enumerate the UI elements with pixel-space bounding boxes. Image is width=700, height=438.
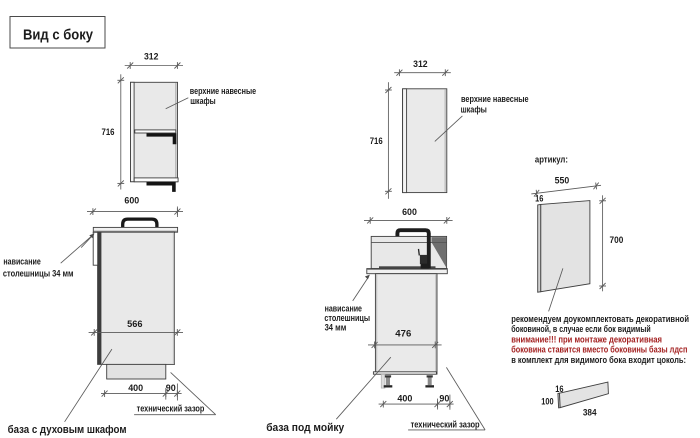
svg-text:90: 90 — [439, 393, 449, 403]
svg-text:технический зазор: технический зазор — [137, 404, 205, 414]
svg-text:716: 716 — [370, 136, 383, 146]
svg-text:34 мм: 34 мм — [325, 323, 347, 333]
svg-text:верхние навесные: верхние навесные — [190, 86, 256, 96]
svg-text:600: 600 — [402, 207, 417, 217]
svg-text:Вид с боку: Вид с боку — [23, 28, 93, 44]
svg-text:боковиной, в случае если бок в: боковиной, в случае если бок видимый — [511, 324, 651, 334]
svg-text:600: 600 — [124, 195, 139, 205]
svg-text:столешницы 34 мм: столешницы 34 мм — [3, 268, 74, 278]
svg-text:90: 90 — [166, 383, 176, 393]
svg-text:шкафы: шкафы — [461, 105, 487, 115]
svg-text:716: 716 — [102, 127, 115, 137]
svg-text:566: 566 — [127, 319, 142, 330]
svg-text:база с духовым шкафом: база с духовым шкафом — [8, 424, 127, 436]
svg-text:100: 100 — [541, 396, 553, 406]
svg-text:700: 700 — [610, 235, 624, 245]
svg-text:боковина ставится вместо боков: боковина ставится вместо боковины базы л… — [511, 345, 687, 355]
svg-text:нависание: нависание — [3, 257, 40, 267]
svg-text:рекомендуем доукомплектовать д: рекомендуем доукомплектовать декоративно… — [511, 314, 689, 324]
svg-text:400: 400 — [128, 383, 143, 393]
svg-text:в комплект для видимого бока в: в комплект для видимого бока входит цоко… — [511, 355, 686, 365]
svg-text:шкафы: шкафы — [190, 96, 216, 106]
svg-text:столешницы: столешницы — [324, 313, 370, 323]
svg-text:артикул:: артикул: — [535, 154, 568, 164]
svg-text:312: 312 — [144, 52, 159, 62]
svg-text:база под мойку: база под мойку — [266, 422, 345, 434]
svg-text:312: 312 — [413, 59, 428, 69]
svg-text:верхние навесные: верхние навесные — [461, 94, 529, 104]
svg-text:400: 400 — [397, 393, 412, 403]
svg-text:16: 16 — [535, 194, 543, 204]
svg-text:технический зазор: технический зазор — [411, 419, 480, 429]
svg-text:нависание: нависание — [325, 303, 362, 313]
svg-text:550: 550 — [555, 176, 570, 186]
svg-text:476: 476 — [395, 329, 411, 340]
svg-text:384: 384 — [583, 407, 597, 417]
svg-text:внимание!!! при монтаже декора: внимание!!! при монтаже декоративная — [511, 334, 662, 344]
